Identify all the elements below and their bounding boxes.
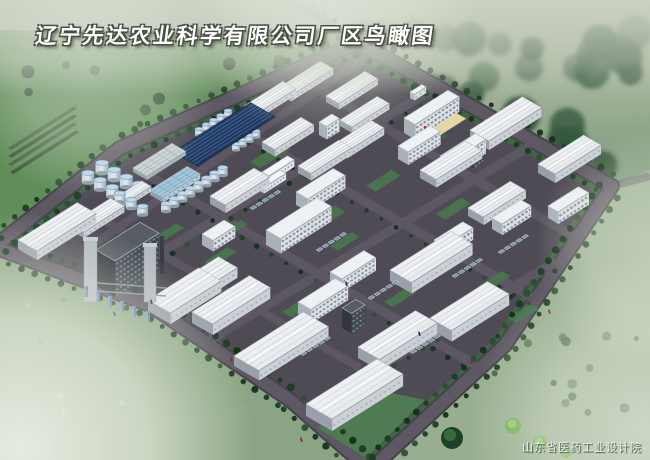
rendering-frame: 辽宁先达农业科学有限公司厂区鸟瞰图 山东省医药工业设计院 [0, 0, 650, 460]
watermark: 山东省医药工业设计院 [522, 439, 642, 455]
image-title: 辽宁先达农业科学有限公司厂区鸟瞰图 [34, 20, 438, 50]
campus-aerial-rendering [0, 0, 650, 460]
